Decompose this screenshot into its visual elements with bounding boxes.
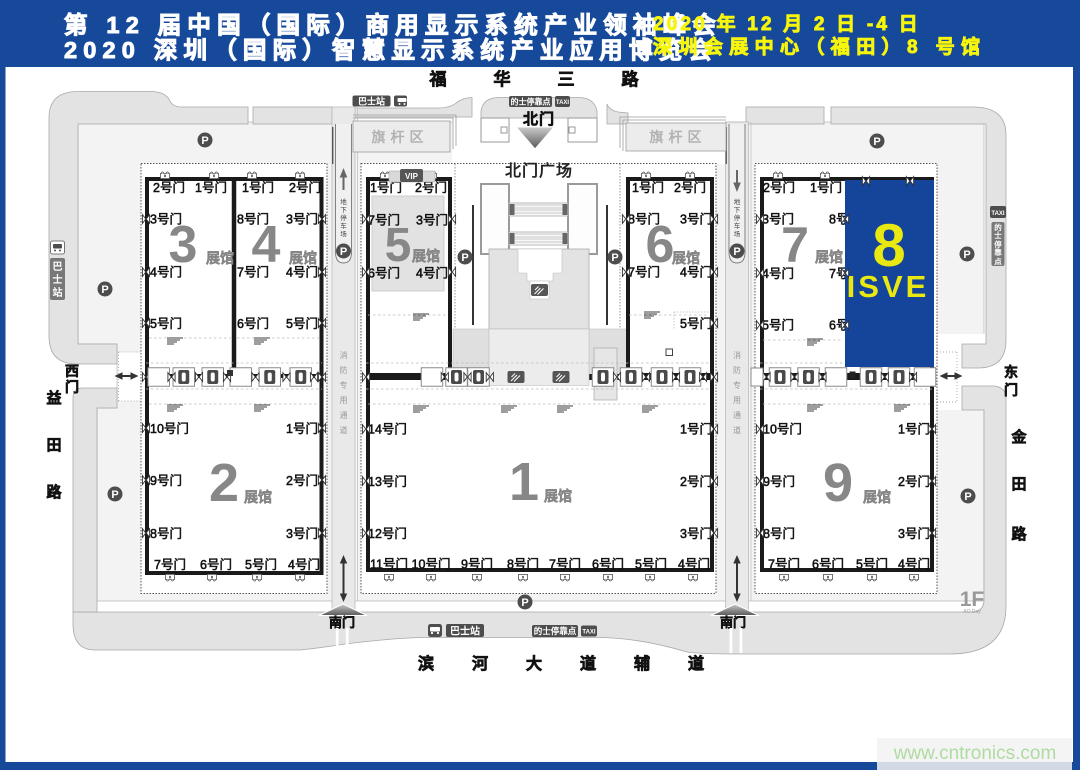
svg-text:11号门: 11号门 [370, 557, 408, 572]
svg-text:6号门: 6号门 [592, 557, 624, 572]
svg-text:9号门: 9号门 [461, 557, 493, 572]
svg-text:场: 场 [734, 229, 741, 238]
svg-text:专: 专 [340, 380, 348, 390]
svg-text:展馆: 展馆 [544, 488, 572, 504]
svg-text:9: 9 [823, 453, 853, 513]
svg-text:VIP: VIP [405, 172, 419, 181]
svg-text:旗杆区: 旗杆区 [372, 129, 429, 145]
svg-text:2号门: 2号门 [763, 180, 795, 195]
svg-text:的士停靠点: 的士停靠点 [534, 626, 577, 636]
svg-text:1F: 1F [960, 588, 985, 611]
svg-text:1号门: 1号门 [898, 422, 930, 437]
svg-text:南门: 南门 [329, 615, 355, 630]
svg-text:4号门: 4号门 [678, 557, 710, 572]
svg-text:道: 道 [688, 654, 704, 673]
svg-text:14号门: 14号门 [368, 422, 407, 437]
svg-text:2号门: 2号门 [289, 180, 321, 195]
svg-text:1: 1 [509, 452, 539, 512]
svg-text:7号门: 7号门 [237, 265, 269, 280]
svg-text:路: 路 [1011, 525, 1027, 543]
svg-text:展馆: 展馆 [244, 489, 272, 505]
svg-text:3号门: 3号门 [898, 526, 930, 541]
svg-text:防: 防 [733, 365, 741, 375]
svg-text:展馆: 展馆 [815, 249, 843, 265]
svg-text:2020 深圳（国际）智慧显示系统产业应用博览会: 2020 深圳（国际）智慧显示系统产业应用博览会 [64, 36, 718, 63]
svg-text:深圳会展中心（福田）8 号馆: 深圳会展中心（福田）8 号馆 [653, 35, 986, 58]
svg-text:4号门: 4号门 [150, 265, 182, 280]
svg-text:门: 门 [1004, 382, 1018, 398]
svg-text:福: 福 [429, 69, 447, 89]
svg-text:道: 道 [733, 425, 741, 435]
svg-text:8号门: 8号门 [763, 526, 795, 541]
svg-text:7号门: 7号门 [768, 557, 800, 572]
svg-text:3号门: 3号门 [762, 212, 794, 227]
svg-text:河: 河 [472, 654, 488, 673]
svg-text:2号门: 2号门 [153, 180, 185, 195]
svg-text:8号门: 8号门 [150, 526, 182, 541]
svg-text:5号门: 5号门 [150, 316, 182, 331]
svg-text:1号门: 1号门 [195, 180, 227, 195]
svg-text:3号门: 3号门 [416, 213, 448, 228]
svg-text:TAXI: TAXI [556, 100, 570, 106]
svg-text:点: 点 [994, 256, 1002, 266]
svg-text:展馆: 展馆 [412, 248, 440, 264]
svg-text:3号门: 3号门 [680, 212, 712, 227]
svg-text:9号门: 9号门 [763, 474, 795, 489]
svg-text:2号门: 2号门 [674, 180, 706, 195]
svg-text:TAXI: TAXI [582, 630, 596, 636]
svg-text:东: 东 [1004, 364, 1018, 380]
svg-text:用: 用 [340, 396, 348, 405]
svg-text:www.cntronics.com: www.cntronics.com [893, 743, 1057, 764]
svg-text:3号门: 3号门 [680, 526, 712, 541]
svg-text:巴士站: 巴士站 [358, 95, 385, 106]
svg-text:金: 金 [1010, 428, 1027, 446]
svg-text:6号门: 6号门 [368, 266, 400, 281]
svg-text:路: 路 [622, 69, 640, 89]
svg-text:4号门: 4号门 [762, 266, 794, 281]
svg-text:2号门: 2号门 [680, 474, 712, 489]
svg-text:5号门: 5号门 [762, 318, 794, 333]
svg-text:车: 车 [734, 221, 741, 230]
svg-text:1号门: 1号门 [242, 180, 274, 195]
svg-text:地: 地 [734, 197, 741, 206]
svg-text:益: 益 [46, 389, 61, 407]
svg-text:6号门: 6号门 [200, 557, 232, 572]
svg-text:9号门: 9号门 [150, 473, 182, 488]
svg-text:展馆: 展馆 [672, 250, 700, 266]
svg-text:华: 华 [494, 69, 511, 89]
svg-text:AO.Day: AO.Day [963, 609, 981, 615]
svg-text:4号门: 4号门 [680, 265, 712, 280]
svg-text:田: 田 [1011, 476, 1026, 493]
svg-text:停: 停 [340, 213, 347, 222]
svg-text:TAXI: TAXI [991, 211, 1005, 217]
svg-text:2号门: 2号门 [898, 474, 930, 489]
svg-text:通: 通 [733, 410, 741, 420]
svg-text:展馆: 展馆 [863, 489, 891, 505]
svg-text:路: 路 [46, 483, 62, 501]
svg-text:第 12 届中国（国际）商用显示系统产业领袖峰会: 第 12 届中国（国际）商用显示系统产业领袖峰会 [64, 11, 722, 38]
svg-text:门: 门 [65, 379, 79, 395]
svg-text:场: 场 [340, 229, 347, 238]
svg-text:2020 年 12 月 2 日 -4 日: 2020 年 12 月 2 日 -4 日 [653, 12, 921, 35]
svg-text:下: 下 [734, 206, 741, 214]
svg-text:士: 士 [53, 273, 63, 286]
svg-text:展馆: 展馆 [206, 250, 234, 266]
svg-text:2: 2 [209, 453, 239, 513]
svg-text:5号门: 5号门 [245, 557, 277, 572]
svg-text:7号门: 7号门 [549, 557, 581, 572]
svg-text:巴: 巴 [53, 261, 63, 273]
svg-text:三: 三 [558, 70, 575, 89]
svg-text:道: 道 [340, 425, 348, 435]
svg-text:西: 西 [65, 363, 79, 379]
svg-text:13号门: 13号门 [368, 474, 407, 489]
svg-text:地: 地 [340, 197, 347, 206]
svg-text:4号门: 4号门 [288, 557, 320, 572]
svg-text:专: 专 [733, 380, 741, 390]
svg-text:4号门: 4号门 [416, 266, 448, 281]
svg-text:大: 大 [526, 654, 542, 673]
svg-text:站: 站 [53, 286, 63, 299]
svg-text:3号门: 3号门 [286, 526, 318, 541]
svg-text:5号门: 5号门 [680, 316, 712, 331]
svg-text:2号门: 2号门 [286, 473, 318, 488]
svg-text:消: 消 [340, 350, 348, 360]
svg-text:6号门: 6号门 [237, 316, 269, 331]
svg-text:田: 田 [46, 437, 61, 454]
svg-text:7号门: 7号门 [154, 557, 186, 572]
svg-text:辅: 辅 [634, 654, 650, 673]
svg-text:4号门: 4号门 [898, 557, 930, 572]
svg-text:通: 通 [340, 410, 348, 420]
svg-text:旗杆区: 旗杆区 [650, 129, 707, 145]
svg-text:南门: 南门 [720, 615, 746, 630]
svg-text:7号门: 7号门 [628, 265, 660, 280]
svg-text:道: 道 [580, 654, 596, 673]
svg-text:12号门: 12号门 [368, 526, 407, 541]
svg-text:靠: 靠 [994, 247, 1002, 257]
svg-text:3号门: 3号门 [286, 212, 318, 227]
svg-text:1号门: 1号门 [632, 180, 664, 195]
svg-text:ISVE: ISVE [847, 269, 930, 304]
svg-text:8号门: 8号门 [237, 212, 269, 227]
svg-text:10号门: 10号门 [763, 422, 802, 437]
svg-text:巴士站: 巴士站 [450, 625, 480, 638]
svg-text:停: 停 [734, 213, 741, 222]
svg-text:用: 用 [733, 396, 741, 405]
svg-text:的士停靠点: 的士停靠点 [511, 97, 551, 107]
svg-text:6号门: 6号门 [812, 557, 844, 572]
svg-text:1号门: 1号门 [286, 421, 318, 436]
svg-text:5号门: 5号门 [286, 316, 318, 331]
svg-text:7号门: 7号门 [368, 213, 400, 228]
svg-text:1号门: 1号门 [680, 422, 712, 437]
svg-text:下: 下 [340, 206, 347, 214]
svg-text:展馆: 展馆 [289, 250, 317, 266]
svg-text:防: 防 [340, 365, 348, 375]
svg-text:8号门: 8号门 [628, 212, 660, 227]
svg-text:士: 士 [994, 230, 1002, 240]
svg-text:10号门: 10号门 [150, 421, 189, 436]
svg-text:8号门: 8号门 [507, 557, 539, 572]
svg-text:滨: 滨 [418, 654, 434, 673]
svg-text:车: 车 [340, 221, 347, 230]
svg-text:5号门: 5号门 [635, 557, 667, 572]
svg-text:10号门: 10号门 [412, 557, 451, 572]
svg-text:5号门: 5号门 [856, 557, 888, 572]
svg-text:北门广场: 北门广场 [505, 162, 573, 180]
svg-text:4号门: 4号门 [286, 265, 318, 280]
svg-text:消: 消 [733, 350, 741, 360]
svg-text:3号门: 3号门 [150, 212, 182, 227]
svg-text:1号门: 1号门 [810, 180, 842, 195]
svg-text:北门: 北门 [523, 110, 555, 128]
